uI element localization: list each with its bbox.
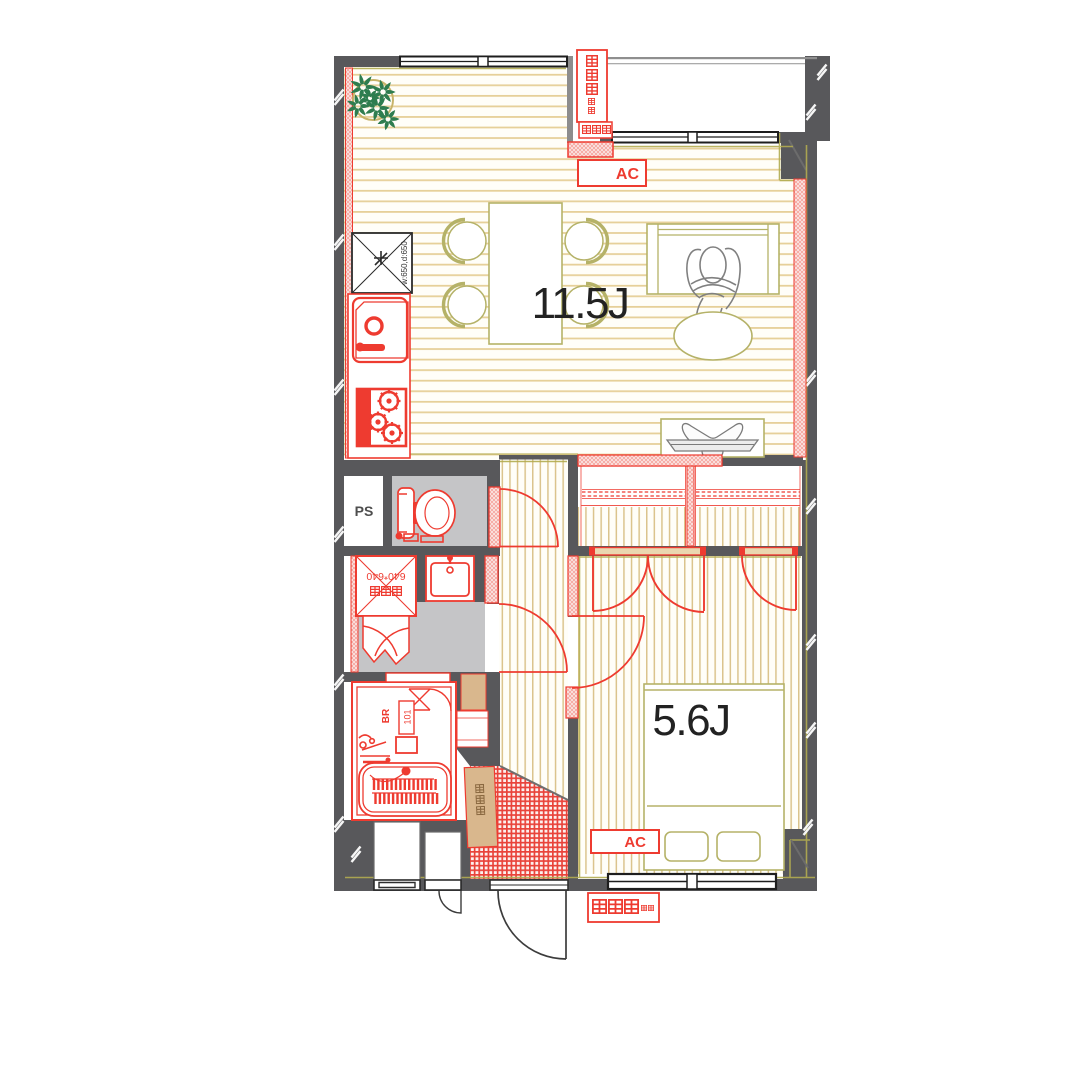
- svg-text:AC: AC: [624, 834, 646, 851]
- svg-text:11.5J: 11.5J: [532, 279, 629, 328]
- svg-text:5.6J: 5.6J: [652, 696, 729, 745]
- svg-text:640*640: 640*640: [366, 570, 405, 582]
- svg-text:AC: AC: [616, 166, 640, 183]
- svg-text:w:650,d:650: w:650,d:650: [400, 241, 409, 286]
- svg-text:101: 101: [403, 709, 413, 724]
- svg-text:PS: PS: [355, 503, 374, 519]
- svg-text:BR: BR: [381, 708, 392, 723]
